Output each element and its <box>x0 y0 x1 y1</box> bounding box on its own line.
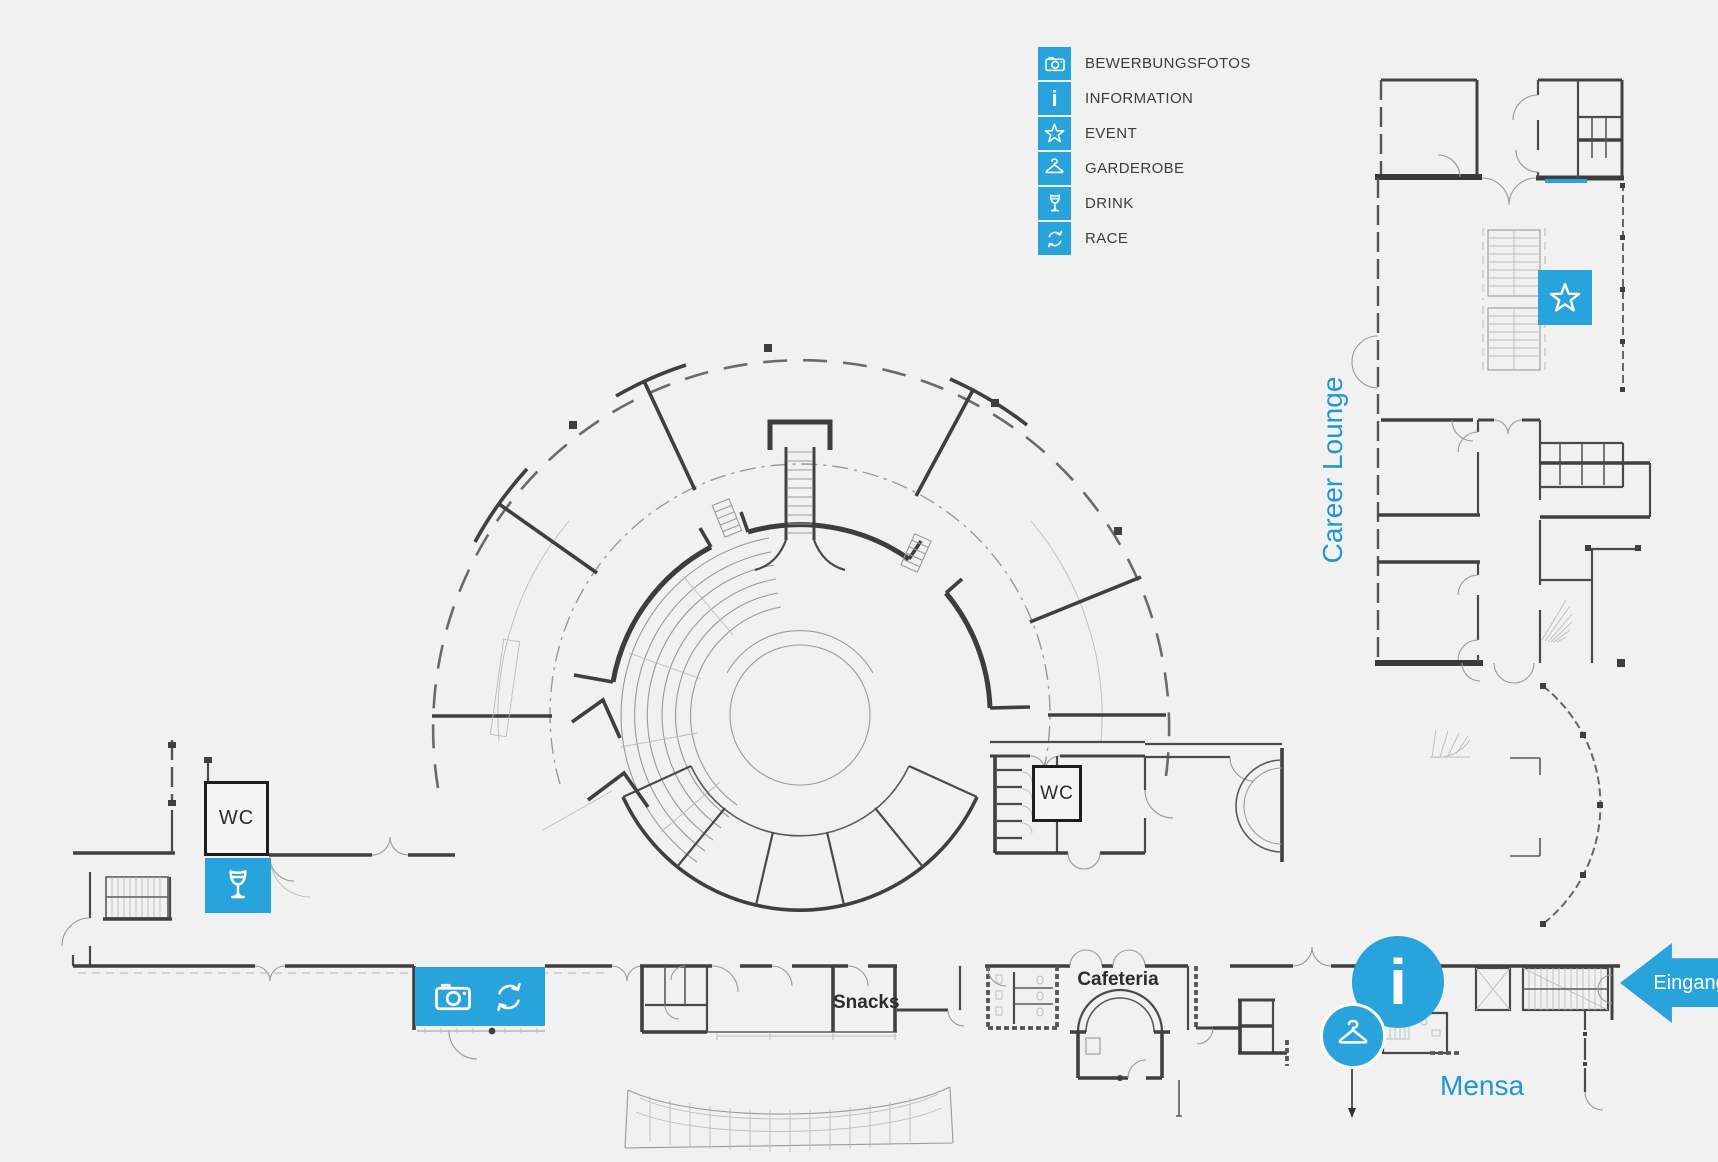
coat-hanger-icon <box>1038 152 1071 185</box>
race-arrows-icon <box>489 977 529 1017</box>
atrium <box>1145 683 1603 927</box>
cafeteria-label: Cafeteria <box>1072 969 1164 991</box>
race-arrows-icon <box>1038 222 1071 255</box>
snacks-rooms <box>640 966 964 1040</box>
drink-marker <box>205 858 271 913</box>
bewerbungsfotos-race-marker <box>415 967 545 1026</box>
legend-label: BEWERBUNGSFOTOS <box>1085 55 1251 72</box>
legend: BEWERBUNGSFOTOS i INFORMATION EVENT GARD… <box>1038 47 1251 257</box>
legend-label: RACE <box>1085 230 1128 247</box>
mensa-label: Mensa <box>1440 1070 1524 1102</box>
legend-label: EVENT <box>1085 125 1137 142</box>
career-lounge-wing <box>1352 80 1650 683</box>
information-icon: i <box>1038 82 1071 115</box>
coat-hanger-icon <box>1333 1016 1373 1056</box>
entrance-label: Eingang <box>1653 972 1718 995</box>
legend-item-drink: DRINK <box>1038 187 1251 220</box>
event-marker <box>1538 270 1592 325</box>
legend-item-garderobe: GARDEROBE <box>1038 152 1251 185</box>
legend-label: GARDEROBE <box>1085 160 1184 177</box>
snacks-label: Snacks <box>833 992 897 1014</box>
wc-right-label: WC <box>1040 783 1074 805</box>
event-star-icon <box>1546 279 1584 317</box>
floor-plan-drawing <box>0 0 1718 1162</box>
legend-label: DRINK <box>1085 195 1134 212</box>
legend-item-race: RACE <box>1038 222 1251 255</box>
wc-right-room: WC <box>1032 765 1082 822</box>
legend-label: INFORMATION <box>1085 90 1193 107</box>
career-lounge-label: Career Lounge <box>1317 360 1345 580</box>
drink-glass-icon <box>218 866 258 906</box>
camera-icon <box>431 975 475 1019</box>
wc-left-label: WC <box>219 807 254 830</box>
legend-item-event: EVENT <box>1038 117 1251 150</box>
legend-item-information: i INFORMATION <box>1038 82 1251 115</box>
drink-glass-icon <box>1038 187 1071 220</box>
wc-left-room: WC <box>204 781 269 856</box>
garderobe-marker <box>1320 1003 1386 1069</box>
camera-icon <box>1038 47 1071 80</box>
floor-plan-page: BEWERBUNGSFOTOS i INFORMATION EVENT GARD… <box>0 0 1718 1162</box>
left-corridor <box>62 740 642 1059</box>
legend-item-bewerbungsfotos: BEWERBUNGSFOTOS <box>1038 47 1251 80</box>
information-icon: i <box>1389 950 1407 1014</box>
event-star-icon <box>1038 117 1071 150</box>
